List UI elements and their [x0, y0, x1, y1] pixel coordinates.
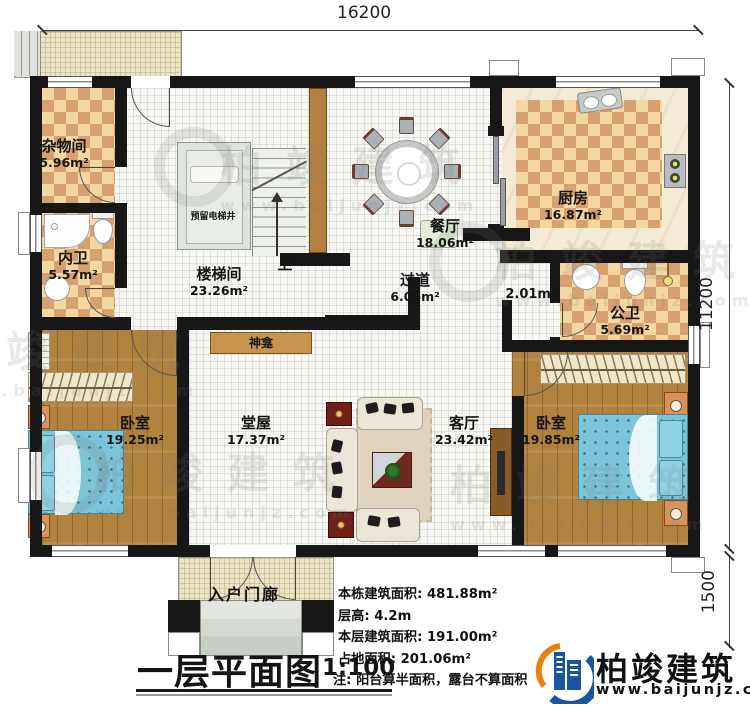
watermark: 柏竣建筑 www.baijunjz.com [0, 318, 204, 400]
dim-top-value: 16200 [337, 3, 391, 23]
window-bedroom-left-bottom [52, 545, 128, 557]
wall-bottom [545, 545, 558, 557]
watermark-text: 柏竣建筑 [450, 452, 714, 513]
room-label-closet: 2.01m² [505, 287, 556, 302]
room-label-dining: 餐厅 18.06m² [416, 218, 474, 250]
porch-pier-left [168, 600, 200, 632]
dim-porch-value: 1500 [699, 570, 719, 613]
watermark-url: www.baijunjz.com [450, 515, 714, 534]
room-label-storage: 杂物间 5.96m² [39, 138, 88, 170]
label-stairs-up: 上 [277, 256, 292, 274]
brand-site: www.baijunjz.com [596, 682, 750, 698]
info-block: 本栋建筑面积: 481.88m² 层高: 4.2m 本层建筑面积: 191.00… [338, 583, 528, 691]
watermark: 柏竣建筑 www.baijunjz.com [450, 452, 714, 534]
door-gap [131, 76, 170, 88]
watermark-url: www.baijunjz.com [95, 503, 359, 522]
sofa-cushion [383, 403, 396, 415]
wall-bottom [128, 545, 210, 557]
window-living-bottom [478, 545, 545, 557]
title-underline-2 [136, 694, 392, 696]
watermark: 柏竣建筑 www.baijunjz.com [95, 440, 359, 522]
wall-top [470, 76, 556, 88]
sofa-cushion [367, 515, 381, 527]
watermark: 柏竣建筑 www.baijunjz.com [220, 133, 484, 215]
room-label-bedroom-left: 卧室 19.25m² [106, 415, 164, 447]
wall-storage-bath-divider [30, 203, 127, 213]
watermark-text: 柏竣建筑 [0, 318, 204, 379]
room-label-public-bath: 公卫 5.69m² [600, 305, 649, 337]
stove [664, 154, 686, 188]
watermark-logo-icon [154, 127, 234, 207]
side-table-top [326, 402, 352, 426]
sofa-cushion [387, 516, 400, 528]
wall-top [92, 76, 131, 88]
brand-logo-icon [534, 640, 594, 704]
info-building-area: 本栋建筑面积: 481.88m² [338, 583, 528, 605]
info-floor-height: 层高: 4.2m [338, 605, 528, 627]
room-label-inner-bath: 内卫 5.57m² [48, 250, 97, 282]
info-note: 注: 阳台算半面积，露台不算面积 [333, 669, 528, 691]
coffee-table [372, 452, 412, 488]
terrace-steps [14, 31, 41, 76]
wall-storage-east [115, 88, 127, 167]
room-label-stairwell: 楼梯间 23.26m² [190, 266, 248, 298]
window-dining-top [355, 76, 470, 88]
sofa-cushion [402, 402, 415, 413]
dining-chair [399, 117, 414, 134]
watermark-text: 柏竣建筑 [95, 440, 359, 501]
window-storage-top [48, 76, 92, 88]
plan-title: 一层平面图 [137, 643, 322, 695]
wall-kitchen-west-block [488, 126, 504, 136]
pier-top-right [671, 58, 705, 76]
watermark-text: 柏竣建筑 [220, 133, 484, 194]
dim-line-top [42, 30, 700, 31]
porch-pier-right [302, 600, 334, 632]
watermark-text: 柏竣建筑 [495, 228, 750, 289]
watermark-url: www.baijunjz.com [0, 381, 204, 400]
window-bedroom-right-bottom [558, 545, 666, 557]
dim-line-right-lower [729, 557, 730, 648]
room-label-kitchen: 厨房 16.87m² [544, 190, 602, 222]
window-kitchen-top [556, 76, 660, 88]
room-label-hallway: 过道 6.05m² [390, 272, 439, 304]
wall-storage-east [115, 203, 127, 288]
bay-sill-left-bath [18, 212, 30, 255]
watermark-logo-icon [29, 434, 109, 514]
wall-hallway-living [325, 315, 420, 330]
wall-left [30, 500, 42, 557]
room-label-bedroom-right: 卧室 19.85m² [522, 415, 580, 447]
info-footprint: 占地面积: 201.06m² [338, 648, 528, 670]
watermark-url: www.baijunjz.com [220, 196, 484, 215]
label-porch: 入户门廊 [208, 586, 280, 605]
dim-line-right-upper [729, 84, 730, 551]
room-label-main-hall: 堂屋 17.37m² [227, 415, 285, 447]
label-shrine: 神龛 [249, 336, 273, 350]
wall-kitchen-west [490, 88, 502, 126]
wall-top [170, 76, 355, 88]
info-floor-area: 本层建筑面积: 191.00m² [338, 626, 528, 648]
label-elevator: 预留电梯井 [190, 212, 235, 223]
window-inner-bath-left [30, 215, 42, 252]
wall-bath-bedroom-right-divider [502, 340, 688, 352]
room-label-living: 客厅 23.42m² [435, 415, 493, 447]
pier-top-mid [489, 60, 519, 76]
window-public-bath-right [688, 326, 700, 364]
floor-plan-canvas: 柏竣建筑 www.baijunjz.com 柏竣建筑 www.baijunjz.… [0, 0, 750, 711]
wall-bottom [296, 545, 478, 557]
